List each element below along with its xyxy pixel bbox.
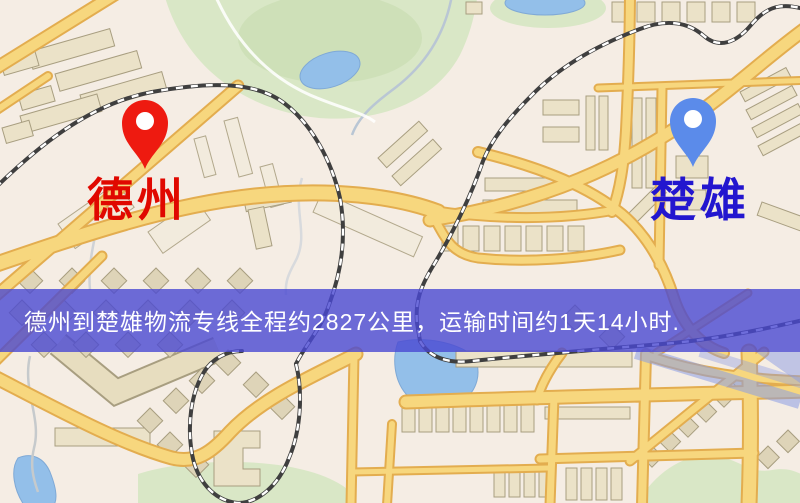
map-canvas[interactable]: 德州到楚雄物流专线全程约2827公里，运输时间约1天14小时. 德州 楚雄 — [0, 0, 800, 503]
logistics-route-map: 德州到楚雄物流专线全程约2827公里，运输时间约1天14小时. 德州 楚雄 — [0, 0, 800, 503]
destination-label: 楚雄 — [650, 175, 750, 226]
pin-hole — [684, 110, 702, 128]
info-banner-text: 德州到楚雄物流专线全程约2827公里，运输时间约1天14小时. — [24, 309, 680, 335]
pin-hole — [136, 112, 154, 130]
origin-label: 德州 — [87, 175, 187, 226]
info-banner: 德州到楚雄物流专线全程约2827公里，运输时间约1天14小时. — [0, 289, 800, 352]
